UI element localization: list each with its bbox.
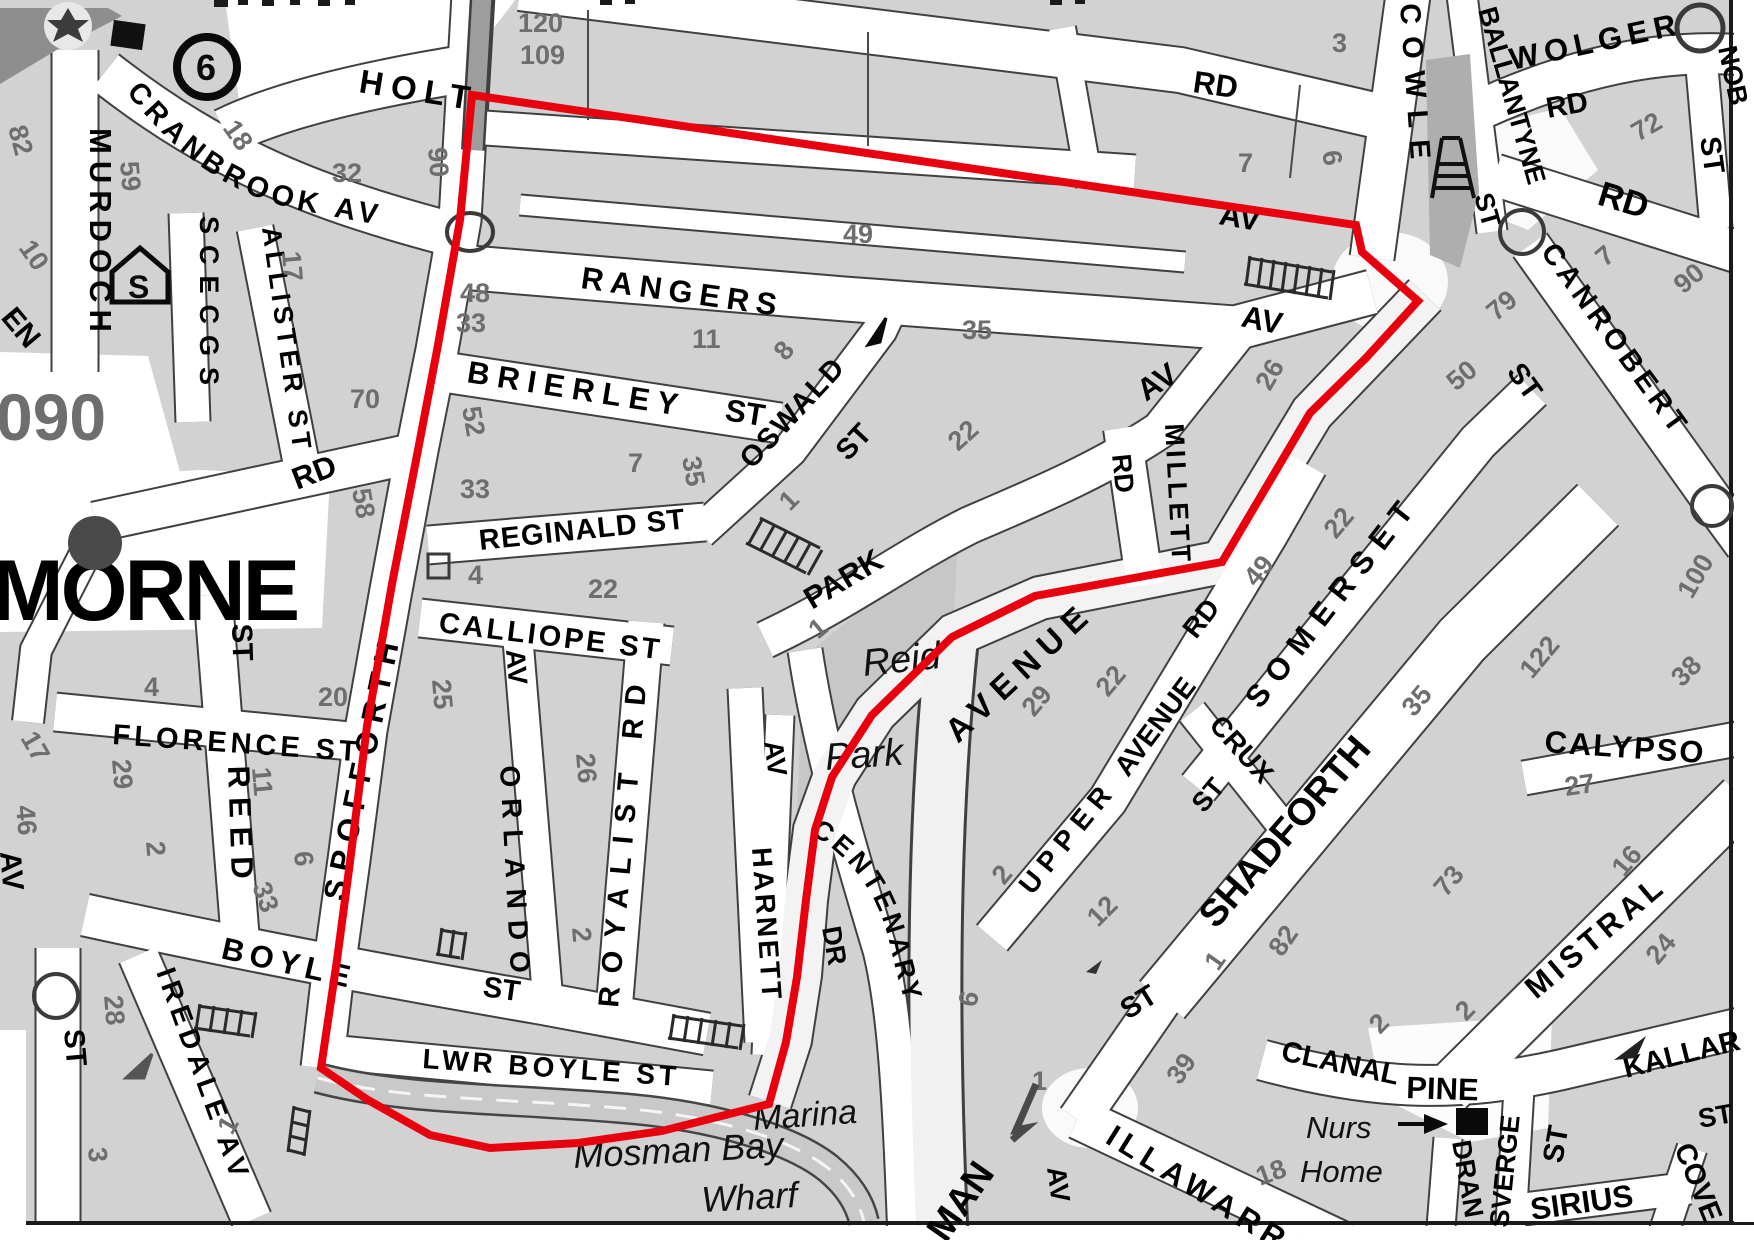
svg-text:90: 90	[422, 146, 455, 179]
svg-text:48: 48	[460, 278, 490, 308]
svg-text:26: 26	[570, 752, 603, 785]
svg-text:AV: AV	[1041, 1165, 1076, 1204]
svg-text:11: 11	[692, 324, 721, 354]
svg-text:49: 49	[843, 219, 873, 249]
svg-text:17: 17	[276, 250, 309, 283]
svg-text:20: 20	[318, 682, 348, 712]
svg-text:ST: ST	[1537, 1123, 1575, 1165]
svg-text:109: 109	[520, 40, 565, 70]
svg-text:7: 7	[628, 448, 643, 478]
svg-text:120: 120	[518, 8, 563, 38]
svg-text:33: 33	[456, 308, 486, 338]
svg-text:Nurs: Nurs	[1306, 1110, 1371, 1145]
svg-text:RD: RD	[1106, 452, 1140, 494]
svg-text:35: 35	[676, 454, 711, 489]
svg-text:SCECGS: SCECGS	[194, 216, 224, 396]
svg-text:29: 29	[106, 758, 139, 791]
svg-text:32: 32	[332, 158, 362, 188]
svg-text:3: 3	[1332, 28, 1347, 58]
svg-text:AV: AV	[758, 739, 793, 778]
svg-text:S: S	[128, 269, 149, 305]
svg-text:3: 3	[82, 1146, 113, 1164]
svg-text:70: 70	[350, 384, 380, 414]
svg-text:25: 25	[426, 678, 459, 711]
svg-text:2: 2	[566, 926, 597, 944]
svg-text:ST: ST	[1696, 1098, 1736, 1134]
svg-text:52: 52	[456, 404, 491, 439]
svg-text:MORNE: MORNE	[0, 543, 297, 639]
svg-text:ST: ST	[1693, 135, 1730, 176]
svg-text:Wharf: Wharf	[700, 1174, 802, 1220]
svg-text:58: 58	[346, 486, 381, 521]
svg-text:35: 35	[962, 315, 992, 345]
svg-text:PINE: PINE	[1406, 1070, 1480, 1108]
svg-text:59: 59	[114, 160, 147, 193]
svg-text:090: 090	[0, 380, 106, 454]
svg-text:AV: AV	[500, 648, 533, 686]
svg-text:7: 7	[1238, 148, 1253, 178]
svg-text:RD: RD	[1191, 64, 1240, 105]
svg-text:2: 2	[140, 840, 171, 858]
svg-text:6: 6	[196, 47, 216, 88]
svg-text:4: 4	[144, 672, 159, 702]
svg-text:46: 46	[10, 804, 43, 837]
svg-text:27: 27	[1563, 768, 1597, 802]
svg-text:28: 28	[98, 994, 131, 1027]
svg-text:6: 6	[288, 850, 319, 868]
svg-text:22: 22	[588, 574, 618, 604]
svg-text:4: 4	[468, 560, 483, 590]
svg-text:AV: AV	[0, 850, 29, 892]
svg-text:ST: ST	[57, 1028, 92, 1068]
svg-text:MURDOCH: MURDOCH	[83, 128, 118, 339]
svg-text:11: 11	[246, 766, 278, 797]
svg-text:33: 33	[460, 474, 490, 504]
svg-text:Home: Home	[1300, 1154, 1383, 1189]
